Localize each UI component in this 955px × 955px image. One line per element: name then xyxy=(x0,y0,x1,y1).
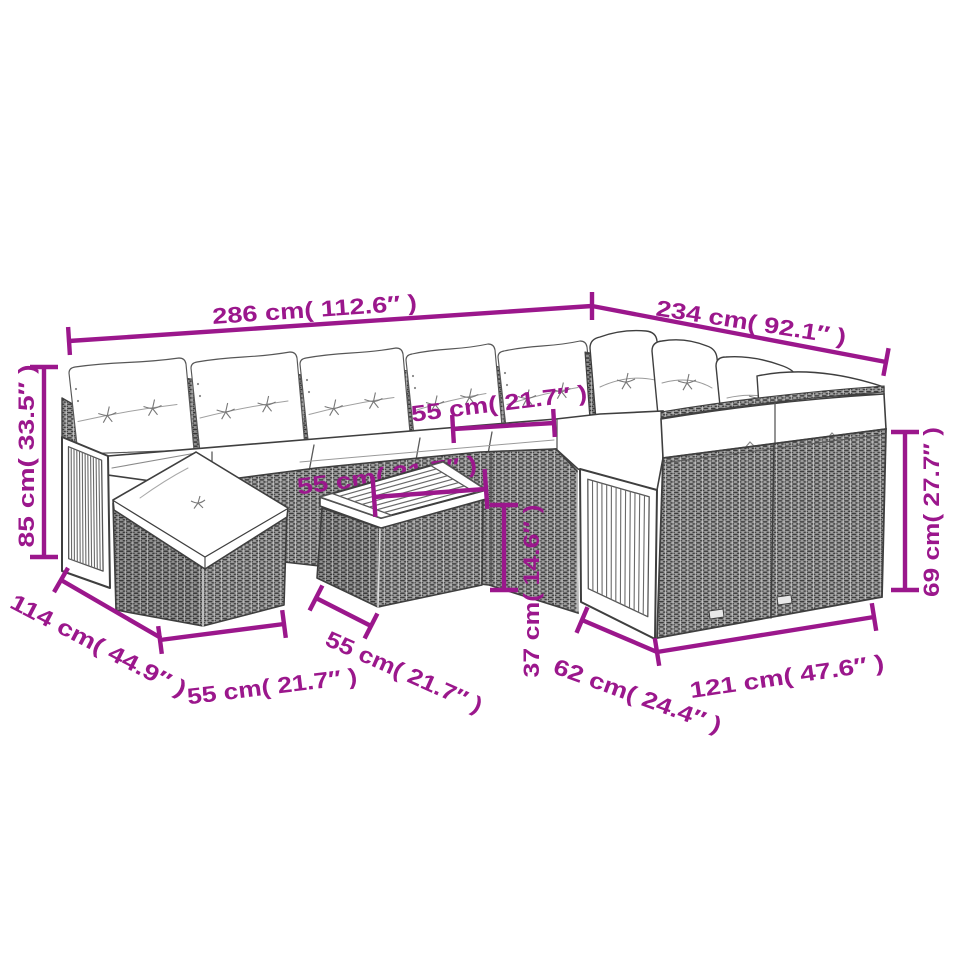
svg-text:37 cm( 14.6″ ): 37 cm( 14.6″ ) xyxy=(519,505,544,678)
svg-text:85 cm( 33.5″ ): 85 cm( 33.5″ ) xyxy=(14,365,39,548)
svg-text:69 cm( 27.7″ ): 69 cm( 27.7″ ) xyxy=(919,427,944,597)
